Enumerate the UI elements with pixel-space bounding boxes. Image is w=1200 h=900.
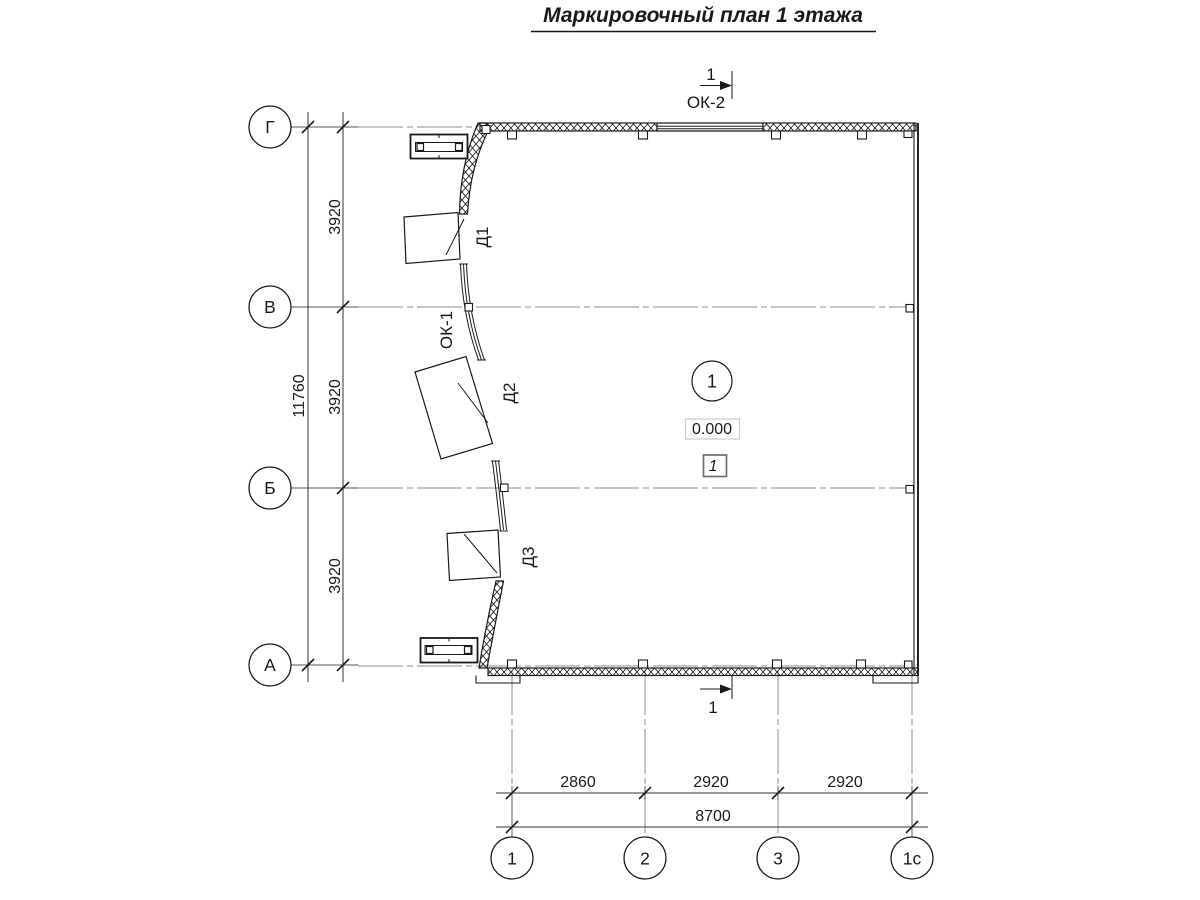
drawing-title: Маркировочный план 1 этажа	[531, 4, 876, 32]
dim-left-seg3: 3920	[327, 558, 344, 594]
room-annotations: 1 0.000 1	[686, 361, 740, 477]
section-arrow-top	[720, 81, 732, 90]
axis-label-1c: 1с	[903, 849, 922, 869]
room-tag: 1	[709, 458, 718, 475]
dim-bottom-seg1: 2860	[560, 774, 596, 791]
top-wall-left-segment	[480, 123, 657, 131]
window-lower	[491, 461, 508, 532]
window-ok1-label: ОК-1	[437, 311, 456, 349]
right-wall-marker-v	[906, 305, 914, 313]
window-axis-marker	[465, 304, 473, 312]
axis-label-b: Б	[264, 478, 275, 498]
door-d3-leaf	[447, 530, 501, 581]
left-dimensions: 3920 3920 3920 11760	[291, 112, 358, 682]
room-number: 1	[707, 372, 717, 392]
wall-piers	[482, 126, 914, 669]
corner-detail-top	[411, 135, 468, 159]
curved-wall-bottom	[479, 581, 504, 668]
dim-bottom-seg3: 2920	[827, 774, 863, 791]
walls	[460, 123, 919, 683]
window-axis-marker-b	[501, 484, 509, 492]
section-mark-top: 1 ОК-2	[687, 65, 732, 112]
corner-detail-bottom	[421, 638, 478, 663]
axis-label-2: 2	[640, 849, 650, 869]
axis-label-a: А	[264, 655, 276, 675]
window-ok1	[459, 264, 486, 360]
door-d1-label: Д1	[473, 227, 492, 248]
axis-label-v: В	[264, 297, 276, 317]
dim-left-total: 11760	[291, 374, 308, 417]
section-arrow-bottom	[720, 685, 732, 694]
section-mark-bottom: 1	[700, 676, 732, 717]
window-ok2	[657, 123, 763, 131]
axis-label-g: Г	[265, 117, 275, 137]
bottom-wall-right-footing	[873, 676, 918, 684]
door-d3	[447, 530, 501, 581]
top-wall-right-segment	[763, 123, 916, 131]
title-text: Маркировочный план 1 этажа	[543, 4, 863, 27]
section-mark-top-number: 1	[706, 65, 715, 84]
axis-label-3: 3	[773, 849, 783, 869]
floor-plan-drawing: Маркировочный план 1 этажа 3920 3920	[0, 0, 1200, 900]
window-ok2-label: ОК-2	[687, 93, 725, 112]
bottom-wall	[488, 668, 918, 676]
bottom-wall-left-footing	[476, 676, 520, 684]
dim-bottom-seg2: 2920	[693, 774, 729, 791]
door-d2-label: Д2	[500, 383, 519, 404]
axis-label-1: 1	[507, 849, 517, 869]
door-d3-label: Д3	[519, 547, 538, 568]
bottom-dimensions: 2860 2920 2920 8700	[496, 774, 928, 837]
section-mark-bottom-number: 1	[708, 698, 717, 717]
elevation-value: 0.000	[692, 421, 732, 438]
axis-bubbles-bottom: 1 2 3 1с	[491, 837, 933, 879]
plan-canvas: Маркировочный план 1 этажа 3920 3920	[0, 0, 1200, 900]
door-d2-leaf	[415, 357, 493, 460]
axis-bubbles-left: Г В Б А	[249, 106, 291, 686]
dim-left-seg1: 3920	[327, 199, 344, 235]
dim-bottom-total: 8700	[695, 808, 731, 825]
door-d1	[404, 213, 464, 264]
door-d1-leaf	[404, 213, 460, 264]
right-wall-marker-b	[906, 486, 914, 494]
dim-left-seg2: 3920	[327, 379, 344, 415]
door-d2	[415, 357, 493, 460]
